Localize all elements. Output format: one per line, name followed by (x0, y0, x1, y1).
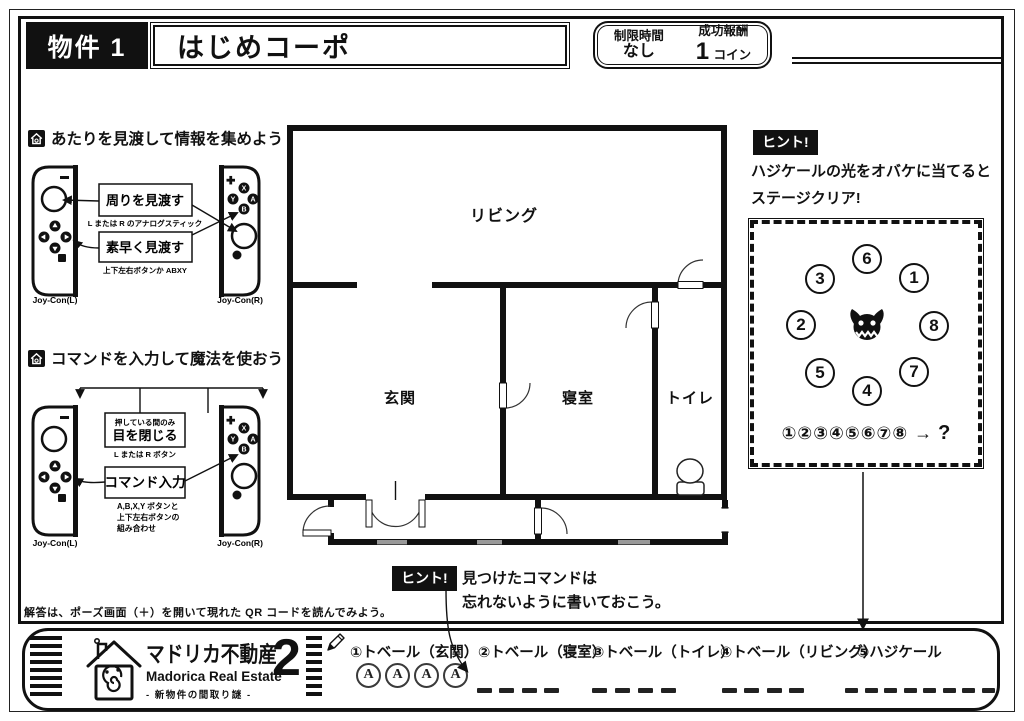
property-title: はじめコーポ (153, 25, 567, 66)
ghost-puzzle-box: 6 3 1 2 8 5 7 4 ①②③④⑤⑥⑦⑧ → ? (748, 218, 984, 469)
joycon-l-label: Joy-Con(L) (33, 538, 78, 548)
command-3-label: ③トベール（トイレ） (592, 641, 735, 662)
puzzle-number: 4 (852, 376, 882, 406)
abxy-buttons: X Y A B (228, 423, 259, 455)
quick-look-caption: 上下左右ボタンか ABXY (103, 265, 187, 275)
svg-text:A: A (250, 437, 255, 444)
joycon-right: X Y A B (219, 405, 259, 537)
demon-icon (848, 308, 886, 344)
section-command-title: コマンドを入力して魔法を使おう (51, 347, 283, 369)
door-entrance-bedroom (500, 383, 531, 408)
puzzle-sequence: ①②③④⑤⑥⑦⑧ (782, 423, 909, 444)
command-5-label: ⑤ハジケール (857, 641, 942, 662)
dpad-buttons (39, 221, 72, 254)
section-command-header: コマンドを入力して魔法を使おう (28, 347, 283, 369)
arrow-right-icon: → (914, 423, 932, 444)
command-input-caption: A,B,X,Y ボタンと 上下左右ボタンの 組み合わせ (117, 501, 180, 533)
header-rule-2 (792, 62, 1001, 64)
house-badge-icon (28, 350, 45, 367)
room-label-bedroom: 寝室 (562, 389, 594, 407)
house-badge-icon (28, 130, 45, 147)
puzzle-number: 7 (899, 357, 929, 387)
logo-number-2: 2 (272, 632, 301, 684)
quick-look-label: 素早く見渡す (106, 240, 184, 255)
walls (287, 125, 728, 545)
floorplan: リビング 玄関 寝室 トイレ (283, 120, 733, 552)
reward: 成功報酬 1 コイン (696, 24, 751, 66)
logo-title-jp: マドリカ不動産 (146, 637, 257, 669)
shoulder-bracket (80, 388, 263, 413)
command-4-label: ④トベール（リビング） (720, 641, 877, 662)
svg-text:組み合わせ: 組み合わせ (117, 523, 156, 533)
dpad-buttons (39, 461, 72, 494)
home-button (233, 251, 242, 260)
door-bedroom-toilet (626, 302, 659, 328)
hint-right-line2: ステージクリア! (751, 187, 861, 208)
logo-stripes-right (306, 636, 322, 698)
svg-text:X: X (242, 426, 247, 433)
joycon-rail (73, 405, 78, 537)
capture-button (58, 494, 66, 502)
close-eyes-caption: L または R ボタン (114, 449, 176, 459)
door-front-entrance (303, 506, 331, 536)
minus-button (60, 416, 69, 419)
header-rule-1 (792, 57, 1001, 59)
joycon-left (33, 165, 78, 297)
svg-text:X: X (242, 186, 247, 193)
logo-title-en: Madorica Real Estate (146, 669, 276, 684)
joycon-l-label: Joy-Con(L) (33, 295, 78, 305)
pencil-icon (326, 633, 345, 652)
abxy-buttons: X Y A B (228, 183, 259, 215)
answer-letter: A (414, 663, 439, 688)
svg-text:B: B (241, 447, 246, 454)
footer-logo-text: マドリカ不動産 Madorica Real Estate - 新物件の間取り謎 … (146, 637, 276, 701)
plus-button (227, 176, 236, 185)
close-eyes-label: 目を閉じる (112, 428, 177, 443)
joycon-rail (219, 165, 224, 297)
puzzle-number: 3 (805, 264, 835, 294)
svg-text:A,B,X,Y ボタンと: A,B,X,Y ボタンと (117, 501, 178, 511)
puzzle-number: 5 (805, 358, 835, 388)
puzzle-number: 6 (852, 244, 882, 274)
property-number-badge: 物件 1 (26, 22, 148, 69)
minus-button (60, 176, 69, 179)
command-2-label: ②トベール（寝室） (478, 641, 606, 662)
answer-note: 解答は、ポーズ画面（＋）を開いて現れた QR コードを読んでみよう。 (24, 604, 392, 620)
joycon-left (33, 405, 78, 537)
svg-text:B: B (241, 207, 246, 214)
home-button (233, 491, 242, 500)
puzzle-number: 2 (786, 310, 816, 340)
command-4-blanks (722, 688, 804, 693)
command-2-blanks (477, 688, 559, 693)
room-label-entrance: 玄関 (384, 389, 416, 407)
puzzle-number: 8 (919, 311, 949, 341)
svg-text:上下左右ボタンの: 上下左右ボタンの (117, 512, 180, 522)
close-eyes-note: 押している間のみ (115, 417, 176, 427)
madorica-house-logo-icon (86, 632, 142, 704)
joycon-r-label: Joy-Con(R) (217, 538, 263, 548)
command-5-blanks (845, 688, 995, 693)
puzzle-number: 1 (899, 263, 929, 293)
svg-text:Y: Y (231, 437, 236, 444)
left-stick (42, 187, 66, 211)
command-diagram: X Y A B 押している間のみ 目を閉じる L または R ボタン コマンド入… (28, 380, 278, 548)
room-label-toilet: トイレ (666, 390, 714, 407)
hint-right-line1: ハジケールの光をオバケに当てると (751, 160, 991, 181)
answer-letter: A (356, 663, 381, 688)
section-look-title: あたりを見渡して情報を集めよう (51, 127, 283, 149)
look-diagram: X Y A B 周りを見渡す L または R のアナログスティック 素早く見渡す… (28, 160, 278, 310)
command-input-label: コマンド入力 (105, 474, 186, 490)
hint-badge-right: ヒント! (753, 130, 818, 155)
time-limit: 制限時間 なし (614, 29, 664, 62)
right-stick (232, 464, 256, 488)
door-living-toilet (678, 260, 703, 289)
time-limit-value: なし (614, 43, 664, 61)
hint-bottom-line2: 忘れないように書いておこう。 (462, 591, 670, 612)
double-door-porch (366, 481, 425, 527)
command-3-blanks (592, 688, 676, 693)
joycon-rail (219, 405, 224, 537)
puzzle-to-answer-arrow (853, 470, 877, 640)
reward-value: 1 コイン (696, 38, 751, 66)
hint-to-answer-arrow (437, 587, 481, 681)
time-limit-label: 制限時間 (614, 29, 664, 43)
reward-box: 制限時間 なし 成功報酬 1 コイン (593, 21, 772, 69)
room-label-living: リビング (470, 206, 538, 225)
property-title-box: はじめコーポ (150, 22, 570, 69)
hint-bottom-line1: 見つけたコマンドは (462, 567, 597, 588)
plus-button (227, 416, 236, 425)
logo-subtitle: - 新物件の間取り謎 - (146, 687, 276, 701)
toilet-icon (677, 459, 704, 495)
section-look-header: あたりを見渡して情報を集めよう (28, 127, 283, 149)
left-stick (42, 427, 66, 451)
right-stick (232, 224, 256, 248)
puzzle-sequence-row: ①②③④⑤⑥⑦⑧ → ? (749, 422, 983, 445)
puzzle-question-mark: ? (938, 422, 950, 445)
svg-text:Y: Y (231, 197, 236, 204)
svg-text:A: A (250, 197, 255, 204)
joycon-rail (73, 165, 78, 297)
logo-stripes-left (30, 636, 62, 698)
door-porch-divider (535, 508, 568, 534)
answer-letter: A (385, 663, 410, 688)
reward-label: 成功報酬 (696, 24, 751, 38)
joycon-r-label: Joy-Con(R) (217, 295, 263, 305)
look-around-caption: L または R のアナログスティック (88, 218, 202, 228)
capture-button (58, 254, 66, 262)
joycon-right: X Y A B (219, 165, 259, 297)
look-around-label: 周りを見渡す (106, 193, 184, 208)
window (722, 507, 729, 533)
